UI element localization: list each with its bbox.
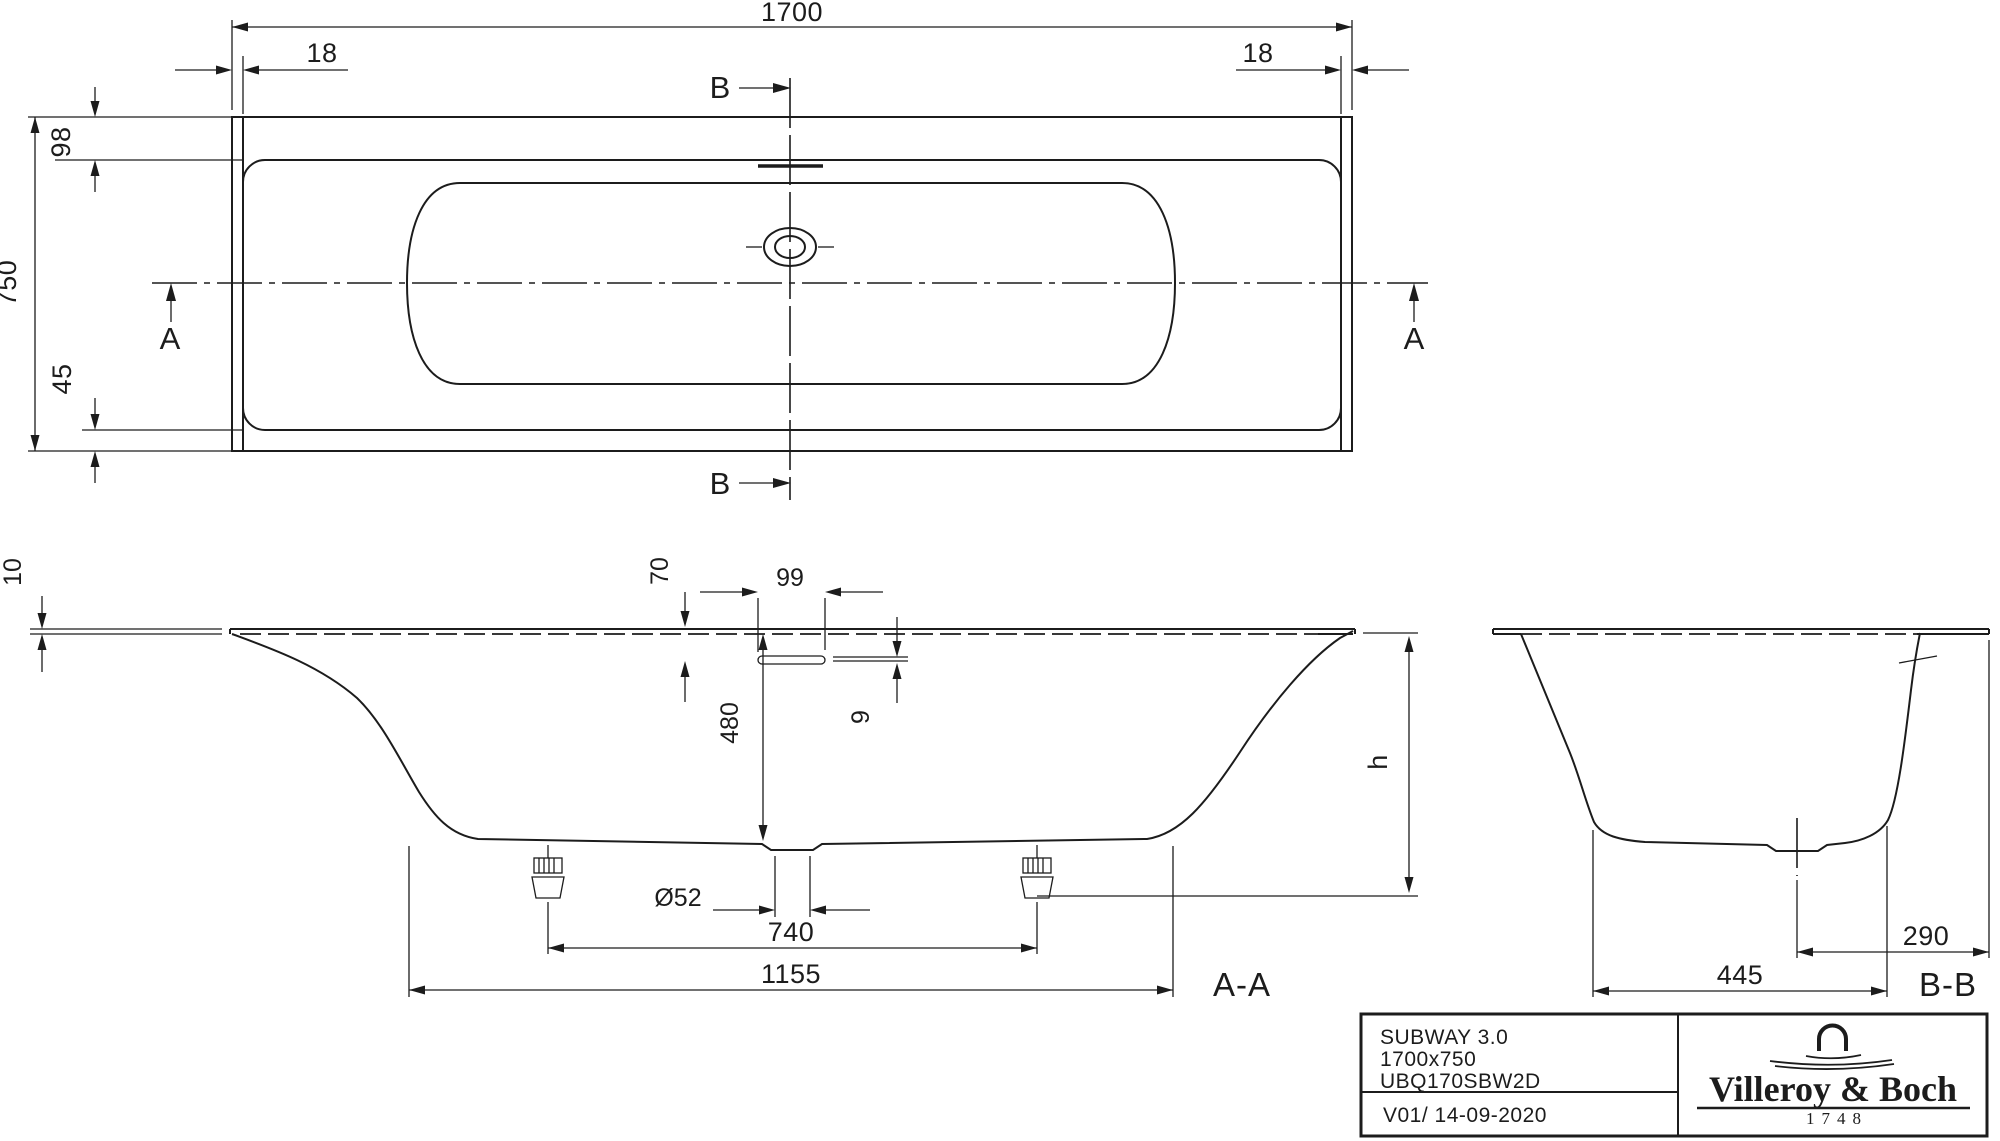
top-view: 1700 18 18 98 (0, 0, 1428, 501)
section-bb-label: B-B (1919, 966, 1977, 1003)
section-arrow-right (773, 478, 791, 488)
arrowhead (1405, 877, 1414, 893)
foot-adjuster (534, 858, 562, 873)
arrowhead (759, 906, 775, 915)
arrowhead (681, 611, 690, 627)
arrowhead (216, 66, 232, 75)
arrowhead (1352, 66, 1368, 75)
overflow-slot-section (758, 656, 825, 664)
dim-1700: 1700 (232, 0, 1352, 110)
dim-text-height: h (1363, 754, 1393, 770)
section-b-letter: B (710, 466, 731, 501)
arrowhead (1021, 944, 1037, 953)
arrowhead (759, 634, 768, 650)
section-a-letter: A (160, 321, 181, 356)
dim-98: 98 (28, 87, 243, 192)
dim-h: h (1037, 633, 1418, 896)
arrowhead (91, 451, 100, 467)
dim-480: 480 (716, 634, 768, 841)
product-model: SUBWAY 3.0 (1380, 1026, 1508, 1049)
arrowhead (1405, 636, 1414, 652)
arrowhead (31, 117, 40, 133)
arrowhead (91, 101, 100, 117)
arrowhead (548, 944, 564, 953)
section-arrow-up (166, 283, 176, 301)
arrowhead (243, 66, 259, 75)
dim-18-right: 18 (1236, 38, 1409, 114)
dim-text-slot-length: 99 (776, 564, 804, 592)
arrowhead (1157, 986, 1173, 995)
arrowhead (893, 663, 902, 679)
dim-text-overall-width: 750 (0, 260, 22, 307)
arrowhead (759, 825, 768, 841)
section-arrow-right (773, 83, 791, 93)
dim-18-left: 18 (175, 38, 348, 114)
dim-text-drain-diameter: Ø52 (654, 884, 701, 912)
dim-text-rim-left: 18 (306, 38, 337, 68)
foot-adjuster (1023, 858, 1051, 873)
dim-740: 740 (548, 902, 1037, 954)
product-size: 1700x750 (1380, 1048, 1476, 1071)
dim-750: 750 (0, 117, 232, 451)
arrowhead (38, 634, 47, 650)
arrowhead (1325, 66, 1341, 75)
foot-cup (1021, 877, 1053, 898)
arrowhead (91, 414, 100, 430)
dim-text-rim-right: 18 (1242, 38, 1273, 68)
arrowhead (742, 588, 758, 597)
section-arrow-up (1409, 283, 1419, 301)
section-aa-view: 10 70 99 480 (0, 557, 1418, 1003)
section-b-letter: B (710, 70, 731, 105)
arrowhead (91, 160, 100, 176)
arrowhead (825, 588, 841, 597)
section-b-marker-bottom: B (710, 466, 791, 501)
drawing-version: V01/ 14-09-2020 (1383, 1104, 1547, 1127)
arrowhead (1797, 948, 1813, 957)
arrowhead (1871, 987, 1887, 996)
arrowhead (232, 23, 248, 32)
drawing-sheet: 1700 18 18 98 (0, 0, 2000, 1141)
dim-text-rim-back: 98 (46, 126, 76, 157)
arrowhead (1973, 948, 1989, 957)
arrowhead (1336, 23, 1352, 32)
overflow-slot-tick (1899, 656, 1937, 663)
arrowhead (893, 641, 902, 657)
foot-cup (532, 877, 564, 898)
dim-290: 290 (1797, 640, 1989, 958)
dim-text-rim-front: 45 (47, 363, 77, 394)
arrowhead (38, 613, 47, 629)
arrowhead (409, 986, 425, 995)
dim-9: 9 (847, 617, 902, 724)
arrowhead (681, 661, 690, 677)
section-a-letter: A (1404, 321, 1425, 356)
section-a-marker-right: A (1404, 283, 1425, 356)
arrowhead (31, 435, 40, 451)
dim-text-drain-offset: 290 (1903, 921, 1950, 951)
dim-text-base-width: 445 (1717, 960, 1764, 990)
dim-10: 10 (0, 558, 222, 672)
title-block: SUBWAY 3.0 1700x750 UBQ170SBW2D V01/ 14-… (1361, 1014, 1987, 1136)
section-aa-label: A-A (1213, 966, 1271, 1003)
article-number: UBQ170SBW2D (1380, 1070, 1541, 1093)
dim-45: 45 (47, 363, 243, 483)
section-bb-view: 445 290 B-B (1493, 629, 1989, 1003)
dim-text-overflow-drop: 70 (646, 557, 674, 585)
dim-text-base-length: 1155 (761, 959, 821, 989)
tub-section-profile (1521, 633, 1920, 851)
dim-text-slot-height: 9 (847, 710, 875, 724)
dim-445: 445 (1593, 826, 1887, 997)
adjustable-foot-right (1021, 845, 1053, 898)
technical-drawing-canvas: 1700 18 18 98 (0, 0, 2000, 1141)
dim-text-rim-thickness: 10 (0, 558, 27, 586)
arrowhead (810, 906, 826, 915)
dim-text-feet-spacing: 740 (768, 917, 815, 947)
dim-text-length: 1700 (761, 0, 823, 27)
dim-99: 99 (700, 564, 883, 652)
brand-name: Villeroy & Boch (1709, 1069, 1957, 1109)
arrowhead (1593, 987, 1609, 996)
section-a-marker-left: A (160, 283, 181, 356)
dim-drain-diameter: Ø52 (654, 856, 870, 917)
dim-text-depth: 480 (716, 702, 744, 744)
adjustable-foot-left (532, 845, 564, 898)
brand-established-year: 1748 (1806, 1109, 1868, 1128)
section-b-marker-top: B (710, 70, 791, 105)
